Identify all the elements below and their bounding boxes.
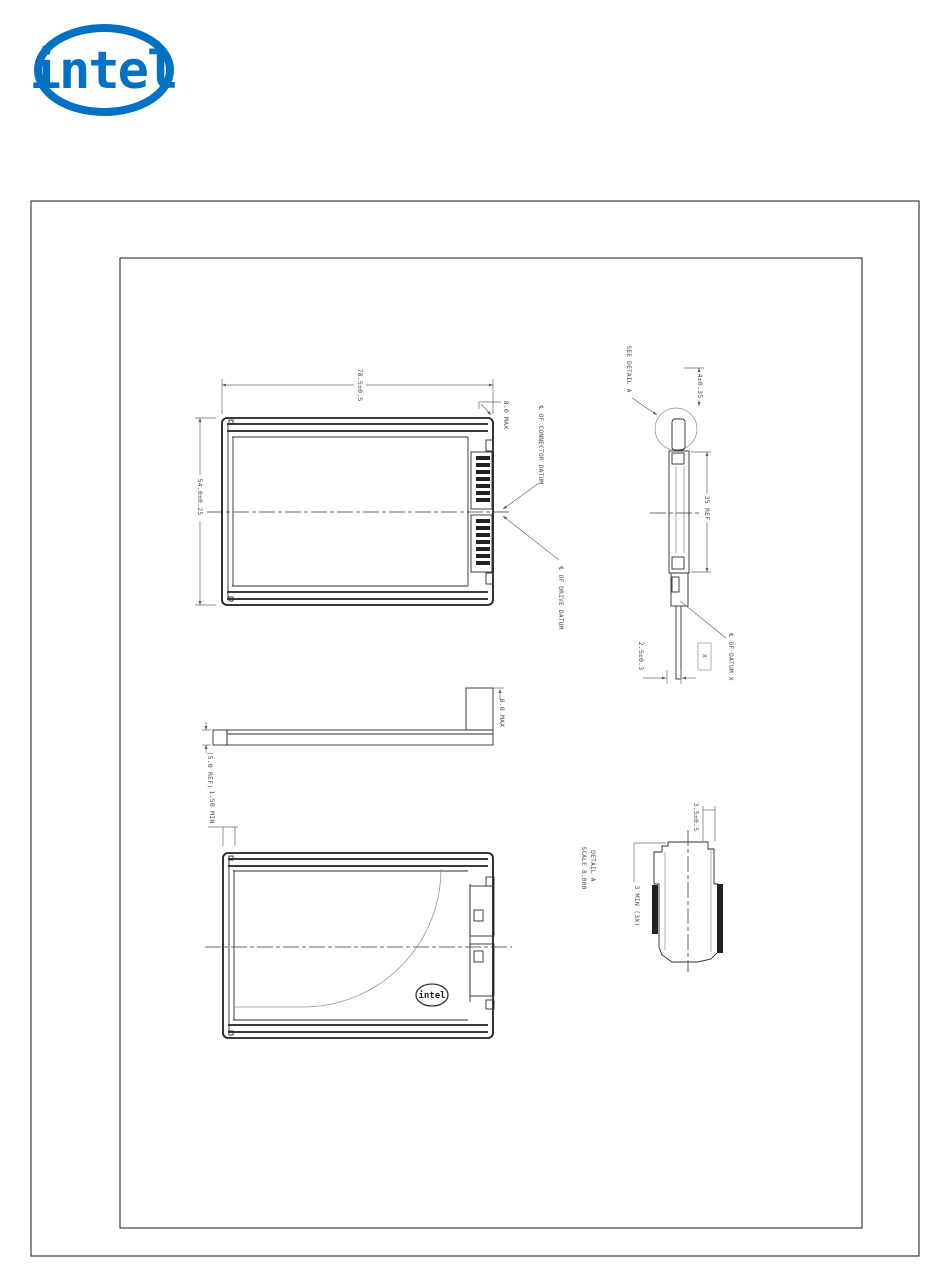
bottom-view: 1.50 MIN intel	[205, 791, 512, 1038]
top-view: 78.5±0.5 54.0±0.25 8.0 MAX ℄ OF CONNECTO…	[194, 363, 564, 630]
connector-step	[466, 688, 493, 730]
dim-rail-label: 1.50 MIN	[208, 791, 216, 824]
detail-title: DETAIL A	[589, 850, 596, 881]
detail-circle	[655, 408, 697, 450]
intel-logo-mini: intel	[416, 984, 448, 1006]
dim-height-label: (5.0 REF)	[206, 751, 214, 788]
dim-length-label: 78.5±0.5	[356, 369, 364, 402]
page-outer-frame	[31, 201, 919, 1256]
detail-scale: SCALE 8.000	[580, 846, 587, 889]
side-view: 8.0 MAX (5.0 REF)	[202, 688, 506, 789]
dim-corner-label: 8.0 MAX	[502, 401, 510, 430]
dim-span-label: 35 REF	[703, 496, 711, 521]
datum-x-label: ℄ OF DATUM X	[727, 632, 734, 680]
registered-mark: ®	[160, 48, 167, 61]
connector-profile	[654, 842, 718, 962]
datum-flag-label: X	[701, 654, 708, 658]
detail-dim-width-label: 3.5±0.5	[692, 803, 700, 832]
dim-bottom-label: 2.5±0.3	[637, 642, 645, 671]
intel-logo: intel ®	[30, 28, 177, 112]
see-detail-label: SEE DETAIL A	[625, 345, 632, 392]
intel-logo-text: intel	[30, 41, 177, 101]
dim-top-label: 4±0.35	[696, 374, 704, 399]
detail-a-view: 3.5±0.5 3 MIN (3X) DETAIL A SCALE 8.000	[580, 803, 723, 972]
drawing-border	[120, 258, 862, 1228]
drive-datum-label: ℄ OF DRIVE DATUM	[557, 565, 564, 629]
label-arc	[234, 869, 441, 1007]
dim-width-label: 54.0±0.25	[196, 478, 204, 515]
intel-logo-mini-text: intel	[418, 990, 445, 1001]
detail-dim-min-label: 3 MIN (3X)	[633, 885, 641, 926]
datasheet-page: intel ®	[0, 0, 950, 1285]
technical-drawing: intel ®	[0, 0, 950, 1285]
connector-datum-label: ℄ OF CONNECTOR DATUM	[537, 405, 544, 485]
dim-step-label: 8.0 MAX	[498, 699, 506, 728]
connector-underside	[470, 877, 494, 1009]
end-view: SEE DETAIL A 4±0.35 35 REF 2.5±0.3 X ℄ O…	[625, 345, 734, 684]
